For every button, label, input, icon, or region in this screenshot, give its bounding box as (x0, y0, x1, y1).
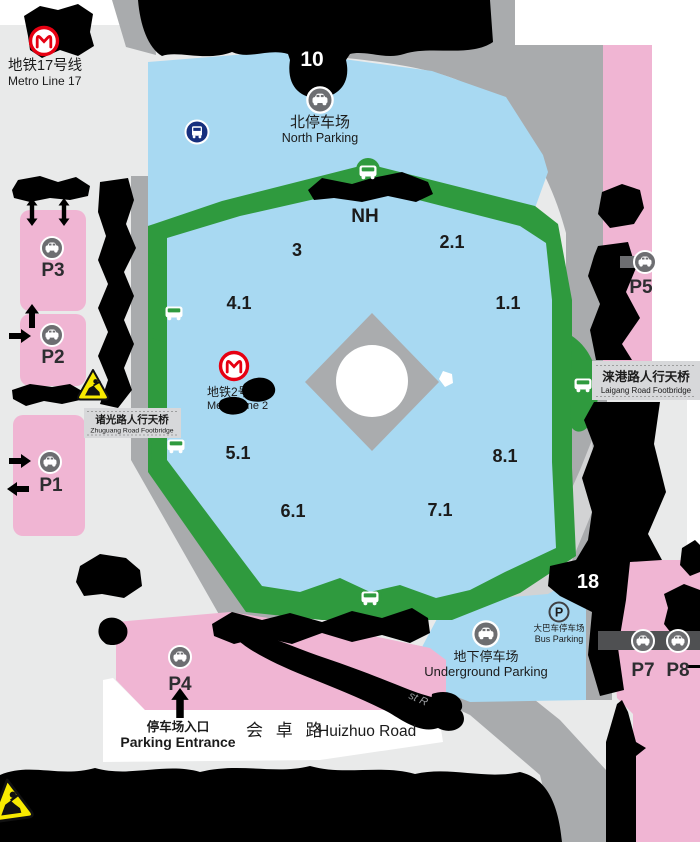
bus-parking-label-en: Bus Parking (535, 634, 584, 644)
hall-label-6-1: 6.1 (280, 501, 305, 521)
car-parking-icon-p1 (39, 451, 61, 473)
parking-label-p8: P8 (666, 660, 689, 681)
hall-label-5-1: 5.1 (225, 443, 250, 463)
underground-parking-label-zh: 地下停车场 (453, 649, 518, 664)
gate-number-north: 10 (300, 48, 323, 71)
laigang-footbridge-label-zh: 涞港路人行天桥 (602, 369, 690, 384)
parking-label-p4: P4 (168, 674, 192, 695)
laigang-footbridge-label-en: Laigang Road Footbridge (601, 386, 692, 395)
parking-label-p2: P2 (41, 347, 64, 368)
hall-label-7-1: 7.1 (427, 500, 452, 520)
bus-stop-icon (186, 121, 209, 144)
white-top-strip (515, 0, 655, 45)
hall-label-3: 3 (292, 240, 302, 260)
north-parking-label-zh: 北停车场 (290, 114, 350, 131)
metro-line17-logo-icon (31, 28, 58, 55)
bus-parking-label-zh: 大巴车停车场 (533, 623, 584, 633)
parking-label-p1: P1 (39, 475, 63, 496)
metro-line17-label-en: Metro Line 17 (8, 74, 82, 88)
car-parking-icon-p5 (634, 251, 656, 273)
gate-number-south: 18 (577, 571, 599, 593)
car-parking-icon-north (307, 87, 332, 112)
hall-label-1-1: 1.1 (495, 293, 520, 313)
parking-label-p5: P5 (629, 277, 653, 298)
map-canvas: P 地铁17号线 Metro Line 17 北停车场 North Parkin… (0, 0, 700, 850)
car-parking-icon-p4 (169, 646, 191, 668)
parking-label-p7: P7 (631, 660, 654, 681)
white-bottom-strip (0, 842, 700, 850)
car-parking-icon-p3 (41, 237, 63, 259)
white-top-right (652, 0, 700, 361)
car-parking-icon-p7 (632, 630, 654, 652)
parking-entrance-label-en: Parking Entrance (120, 734, 235, 750)
parking-map: P 地铁17号线 Metro Line 17 北停车场 North Parkin… (0, 0, 700, 850)
zhuguang-footbridge-label-zh: 诸光路人行天桥 (95, 413, 169, 426)
hall-label-nh: NH (351, 206, 378, 227)
metro-line2-logo-icon (221, 353, 248, 380)
parking-entrance-label-zh: 停车场入口 (147, 719, 210, 734)
redaction-blob (0, 766, 562, 842)
redaction-blob (219, 397, 248, 415)
huizhuo-road-label-en: Huizhuo Road (318, 723, 416, 740)
hall-label-8-1: 8.1 (492, 446, 517, 466)
huizhuo-road-label-zh: 会 卓 路 (246, 721, 326, 740)
car-parking-icon-p8 (667, 630, 689, 652)
central-plaza-circle (336, 345, 408, 417)
parking-label-p3: P3 (41, 260, 64, 281)
metro-line17-label-zh: 地铁17号线 (8, 57, 82, 74)
zhuguang-footbridge-label-en: Zhuguang Road Footbridge (90, 428, 173, 435)
car-parking-icon-underground (473, 621, 498, 646)
underground-parking-label-en: Underground Parking (424, 664, 548, 679)
car-parking-icon-p2 (41, 324, 63, 346)
hall-label-4-1: 4.1 (226, 293, 251, 313)
hall-label-2-1: 2.1 (439, 232, 464, 252)
north-parking-label-en: North Parking (282, 131, 358, 145)
bus-parking-p-letter: P (555, 606, 563, 620)
